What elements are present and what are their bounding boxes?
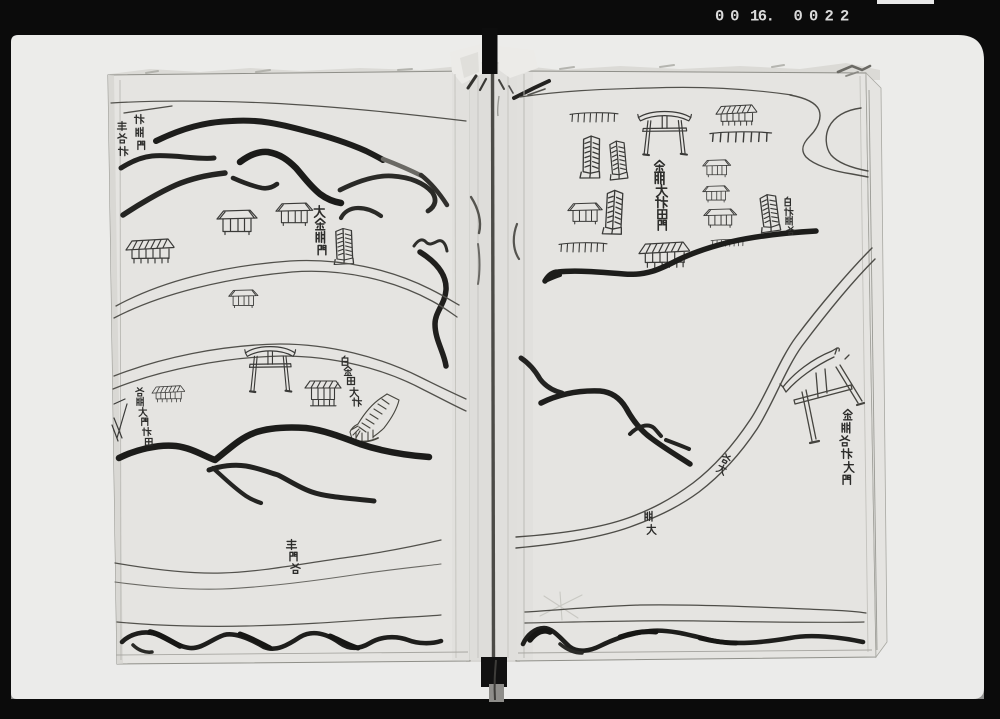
svg-text:0022: 0022: [794, 8, 856, 26]
svg-text:00: 00: [715, 8, 745, 26]
svg-text:16.: 16.: [750, 8, 773, 26]
